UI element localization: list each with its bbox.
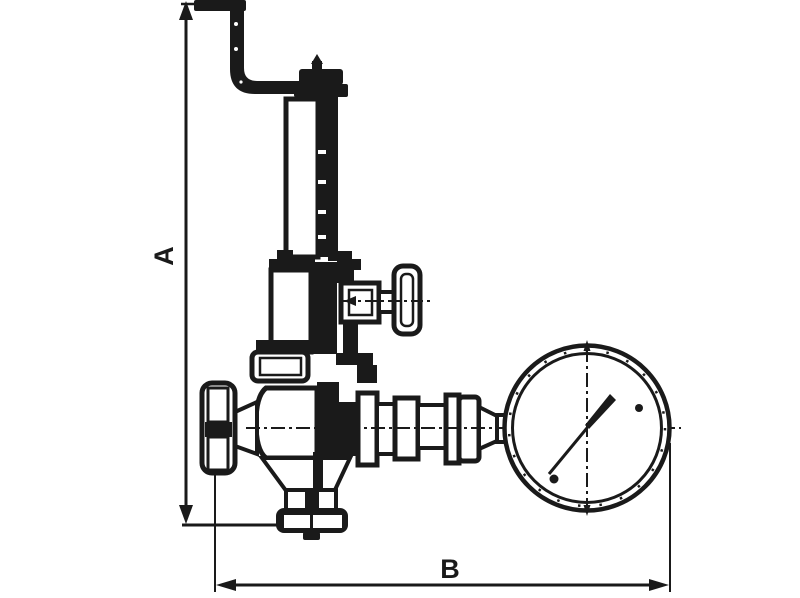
spring-notch [318,180,326,184]
branch-flange [336,353,373,365]
housing-chamber [286,99,318,257]
handwheel-hub-band [205,422,232,437]
technical-drawing-canvas: A [0,0,800,598]
spring-housing [286,97,338,257]
lever-arm [230,0,308,94]
packing-nut [252,340,313,381]
outlet-inner-stem [313,452,323,492]
fitting-union [418,405,446,448]
outlet-funnel [262,458,350,492]
cap-block [299,69,343,85]
test-lever [194,0,308,94]
body-shell [256,388,317,458]
dimension-b-arrow-right [649,579,669,591]
packing-hex-inner [260,358,301,375]
outlet-neck-slot [305,490,319,508]
cap-collar [294,84,348,97]
knob-branch [343,320,358,354]
dimension-b-label: B [440,554,460,584]
valve-drawing: A [0,0,800,598]
bonnet-box [271,270,311,352]
handwheel-rib-bottom [208,437,228,470]
side-adjusting-knob [336,266,432,383]
spring-stem [316,97,338,257]
lever-elbow-dot [239,80,242,83]
outlet-tab [303,532,320,540]
outlet [262,452,350,540]
bonnet-column [311,262,337,354]
spring-notch [318,210,326,214]
dimension-b-arrow-left [216,579,236,591]
needle-counterweight [550,475,559,484]
handwheel-rib-top [208,388,228,422]
lever-pin-dot [234,47,238,51]
gauge-stop-pin [635,404,643,412]
spring-notch [318,150,326,154]
outlet-flange-window [284,515,310,528]
valve-cap [294,54,348,97]
bonnet-step [337,259,361,270]
dimension-a-label: A [149,246,179,266]
lever-pin-dot [234,22,238,26]
outlet-flange-window [313,515,342,528]
spring-notch [318,235,326,239]
body-right-column [317,382,339,458]
branch-block [357,365,377,383]
pressure-gauge [505,340,670,516]
dimension-a-arrow-down [179,505,193,524]
